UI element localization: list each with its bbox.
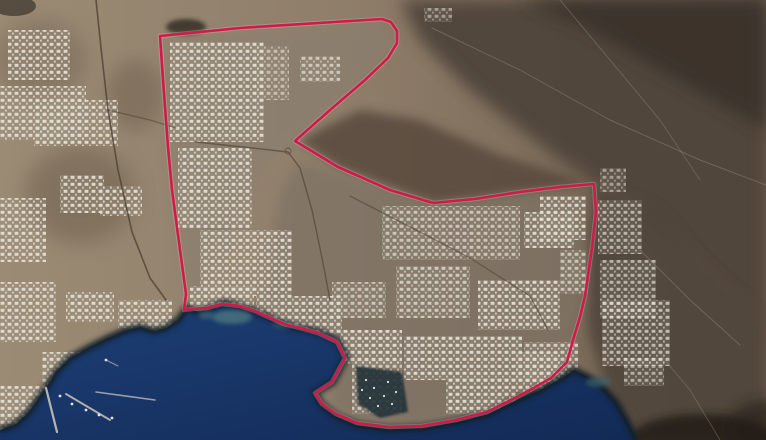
marina-boats (373, 387, 375, 389)
cove-turquoise-small (198, 311, 214, 319)
marina-boats (365, 379, 367, 381)
urban-cluster-w-2 (60, 175, 104, 213)
urban-east-resort-1 (598, 200, 642, 254)
urban-inside-mid-grid (178, 148, 252, 228)
satellite-map-view[interactable] (0, 0, 766, 440)
urban-cluster-nw-3 (34, 100, 118, 146)
urban-cluster-w-3 (100, 186, 142, 216)
marina-boats (395, 391, 397, 393)
urban-lower-lobe-5 (478, 280, 560, 330)
marina-boats (387, 381, 389, 383)
urban-east-resort-3 (602, 300, 670, 366)
marina-boats (383, 395, 385, 397)
harbor-boats (85, 409, 88, 412)
urban-lower-lobe-6 (332, 282, 386, 318)
cove-turquoise-beach (212, 310, 252, 324)
urban-inside-top-sparse (255, 46, 289, 100)
marina-boats (369, 397, 371, 399)
urban-inside-north-grid (170, 42, 264, 142)
harbor-boats (59, 395, 62, 398)
urban-coast-town-2 (66, 292, 114, 322)
urban-facility-north (300, 56, 340, 82)
urban-coast-town-1 (0, 282, 56, 342)
marina-boats (377, 405, 379, 407)
urban-east-resort-4 (624, 358, 664, 386)
urban-lower-lobe-1 (382, 206, 520, 260)
urban-lower-lobe-3 (540, 196, 586, 240)
urban-small-top-center (424, 8, 452, 22)
harbor-boats (98, 414, 101, 417)
urban-lower-lobe-7 (560, 250, 586, 294)
harbor-boats (71, 403, 74, 406)
cove-east-beach (586, 377, 610, 387)
harbor-boats (111, 417, 114, 420)
urban-east-small (600, 168, 626, 192)
marina-boats (391, 403, 393, 405)
urban-cluster-w-1 (0, 198, 46, 262)
urban-cluster-nw-1 (8, 30, 70, 80)
marina-boats (361, 389, 363, 391)
satellite-map-canvas[interactable] (0, 0, 766, 440)
urban-resort-strip-2 (404, 336, 522, 380)
urban-lower-lobe-4 (396, 266, 470, 318)
